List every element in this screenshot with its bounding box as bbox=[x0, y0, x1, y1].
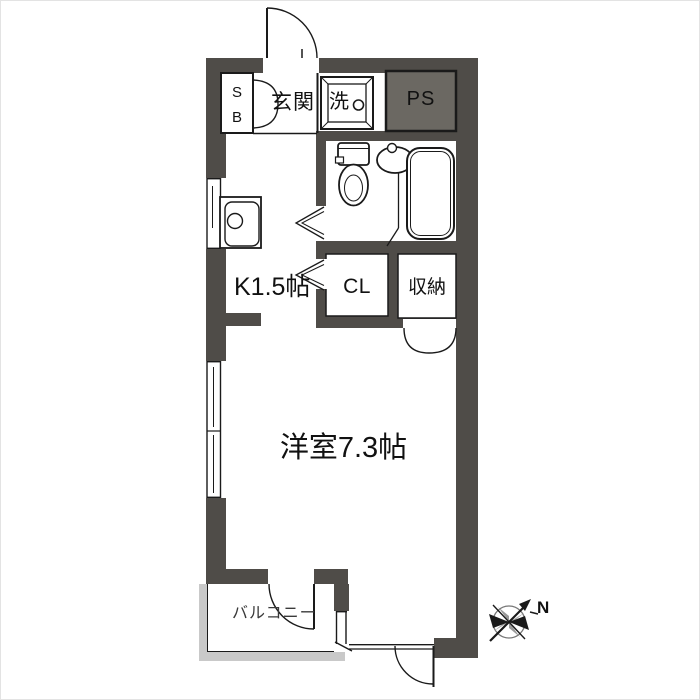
kitchen-window bbox=[207, 178, 221, 249]
compass-icon bbox=[489, 599, 538, 641]
storage-double-doors bbox=[404, 328, 456, 353]
storage-label: 収納 bbox=[398, 278, 456, 298]
bottom-exterior-door bbox=[395, 646, 434, 687]
genkan-label: 玄関 bbox=[271, 92, 315, 114]
bathtub-icon bbox=[407, 148, 454, 239]
main-room-window bbox=[207, 361, 221, 498]
pipe-space-label: PS bbox=[386, 89, 456, 110]
toilet-icon bbox=[336, 143, 370, 206]
bottom-window-line bbox=[349, 645, 434, 649]
folding-door-bathroom-icon bbox=[296, 207, 324, 239]
compass-north-label: N bbox=[537, 599, 549, 617]
balcony-label: バルコニー bbox=[232, 606, 317, 623]
entry-door bbox=[267, 8, 317, 58]
floor-plan: S B 玄関 洗 PS K1.5帖 CL 収納 洋室7.3帖 バルコニー N bbox=[0, 0, 700, 700]
closet-label: CL bbox=[326, 276, 388, 298]
kitchen-sink-icon bbox=[220, 197, 261, 248]
shoe-box-label: S B bbox=[228, 81, 246, 131]
kitchen-label: K1.5帖 bbox=[234, 274, 310, 300]
main-room-label: 洋室7.3帖 bbox=[263, 433, 424, 463]
floor-plan-drawing bbox=[1, 1, 700, 700]
bathroom-divider bbox=[387, 173, 399, 246]
washer-label: 洗 bbox=[329, 92, 349, 113]
